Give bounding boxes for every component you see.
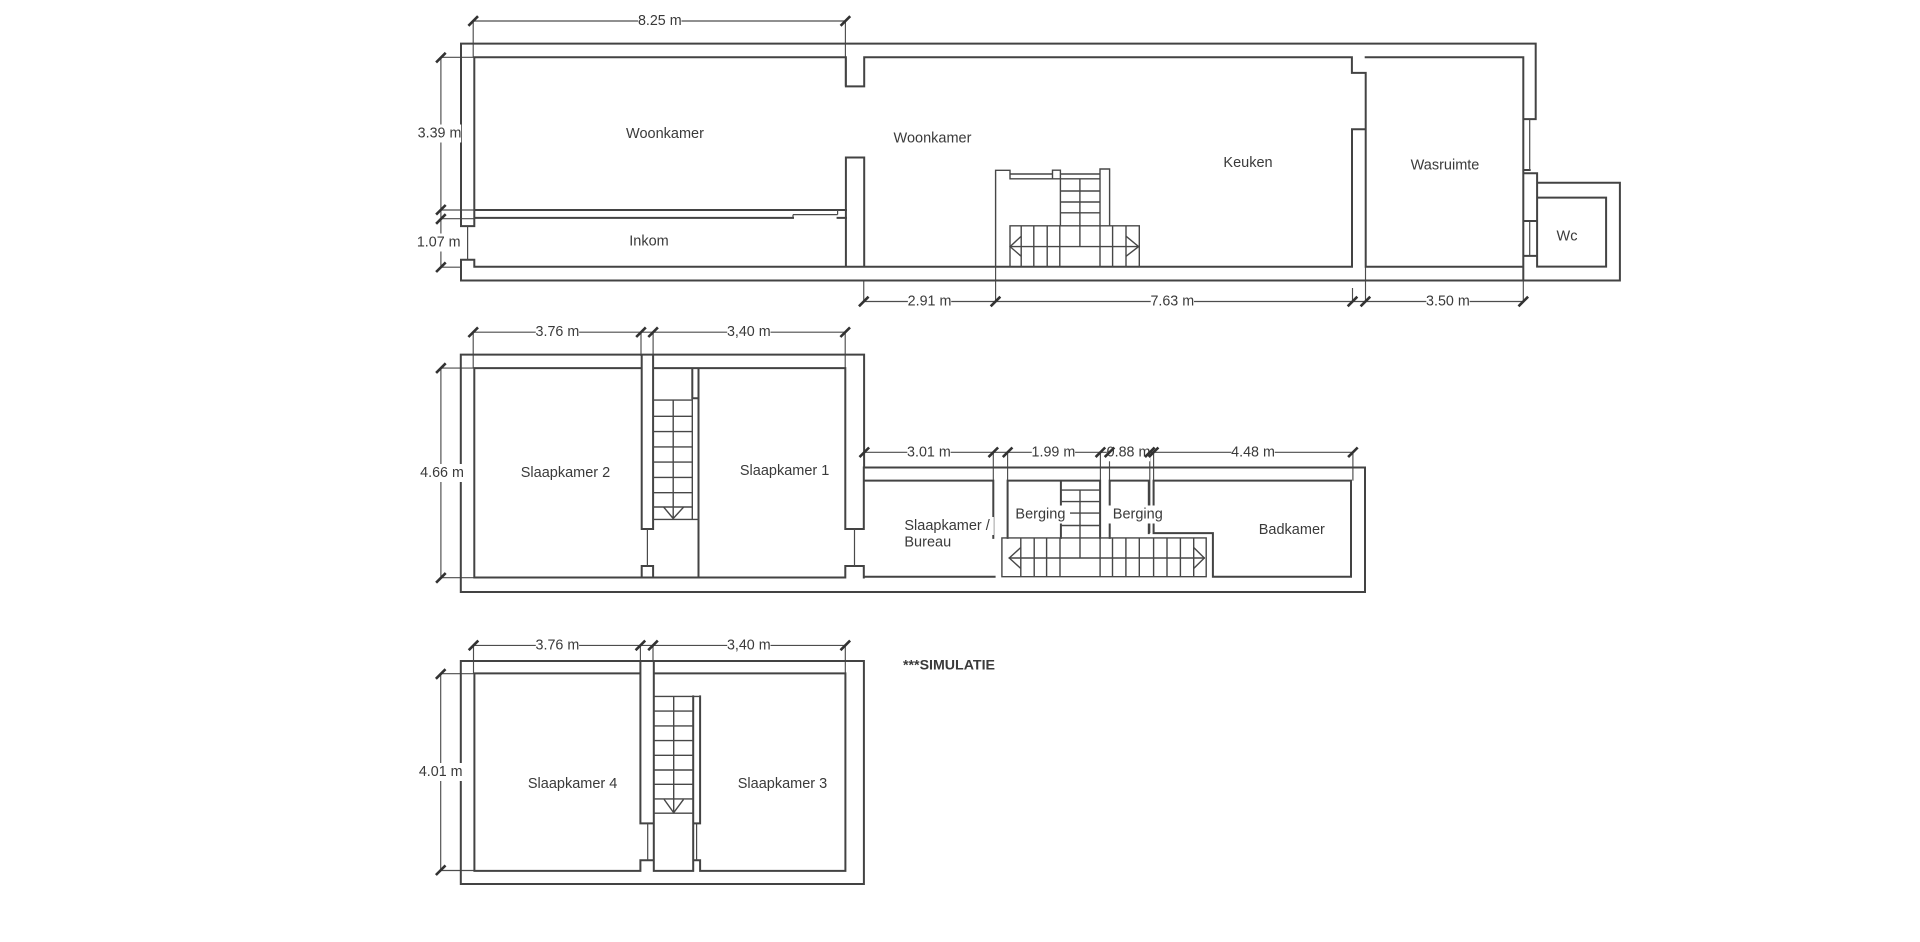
svg-text:2.91 m: 2.91 m (908, 294, 952, 310)
svg-text:1.99 m: 1.99 m (1032, 444, 1076, 460)
svg-text:Berging: Berging (1113, 507, 1163, 523)
svg-text:7.63 m: 7.63 m (1150, 294, 1194, 310)
svg-text:Wasruimte: Wasruimte (1411, 158, 1480, 174)
svg-text:1.07 m: 1.07 m (417, 235, 461, 251)
svg-text:Slaapkamer 2: Slaapkamer 2 (521, 465, 610, 481)
svg-text:3.76 m: 3.76 m (536, 637, 580, 653)
svg-text:8.25 m: 8.25 m (638, 13, 682, 29)
svg-text:Berging: Berging (1015, 507, 1065, 523)
svg-text:Woonkamer: Woonkamer (626, 126, 704, 142)
svg-text:0.88 m: 0.88 m (1107, 444, 1151, 460)
svg-text:3.50 m: 3.50 m (1426, 294, 1470, 310)
svg-text:Slaapkamer 3: Slaapkamer 3 (738, 776, 827, 792)
svg-text:3.39 m: 3.39 m (418, 126, 462, 142)
svg-text:3,40 m: 3,40 m (727, 324, 771, 340)
svg-text:4.66 m: 4.66 m (420, 465, 464, 481)
svg-text:Slaapkamer 1: Slaapkamer 1 (740, 463, 829, 479)
svg-text:Slaapkamer 4: Slaapkamer 4 (528, 776, 617, 792)
svg-text:***SIMULATIE: ***SIMULATIE (903, 658, 995, 674)
svg-text:Inkom: Inkom (629, 234, 669, 250)
svg-text:3.76 m: 3.76 m (536, 324, 580, 340)
svg-text:Woonkamer: Woonkamer (894, 131, 972, 147)
svg-text:Badkamer: Badkamer (1259, 522, 1325, 538)
svg-text:Keuken: Keuken (1223, 155, 1272, 171)
svg-text:3.01 m: 3.01 m (907, 444, 951, 460)
svg-text:Wc: Wc (1557, 229, 1578, 245)
svg-text:Slaapkamer /: Slaapkamer / (904, 518, 990, 534)
svg-text:Bureau: Bureau (904, 535, 951, 551)
svg-text:4.48 m: 4.48 m (1231, 444, 1275, 460)
svg-text:4.01 m: 4.01 m (419, 764, 463, 780)
svg-text:3,40 m: 3,40 m (727, 637, 771, 653)
